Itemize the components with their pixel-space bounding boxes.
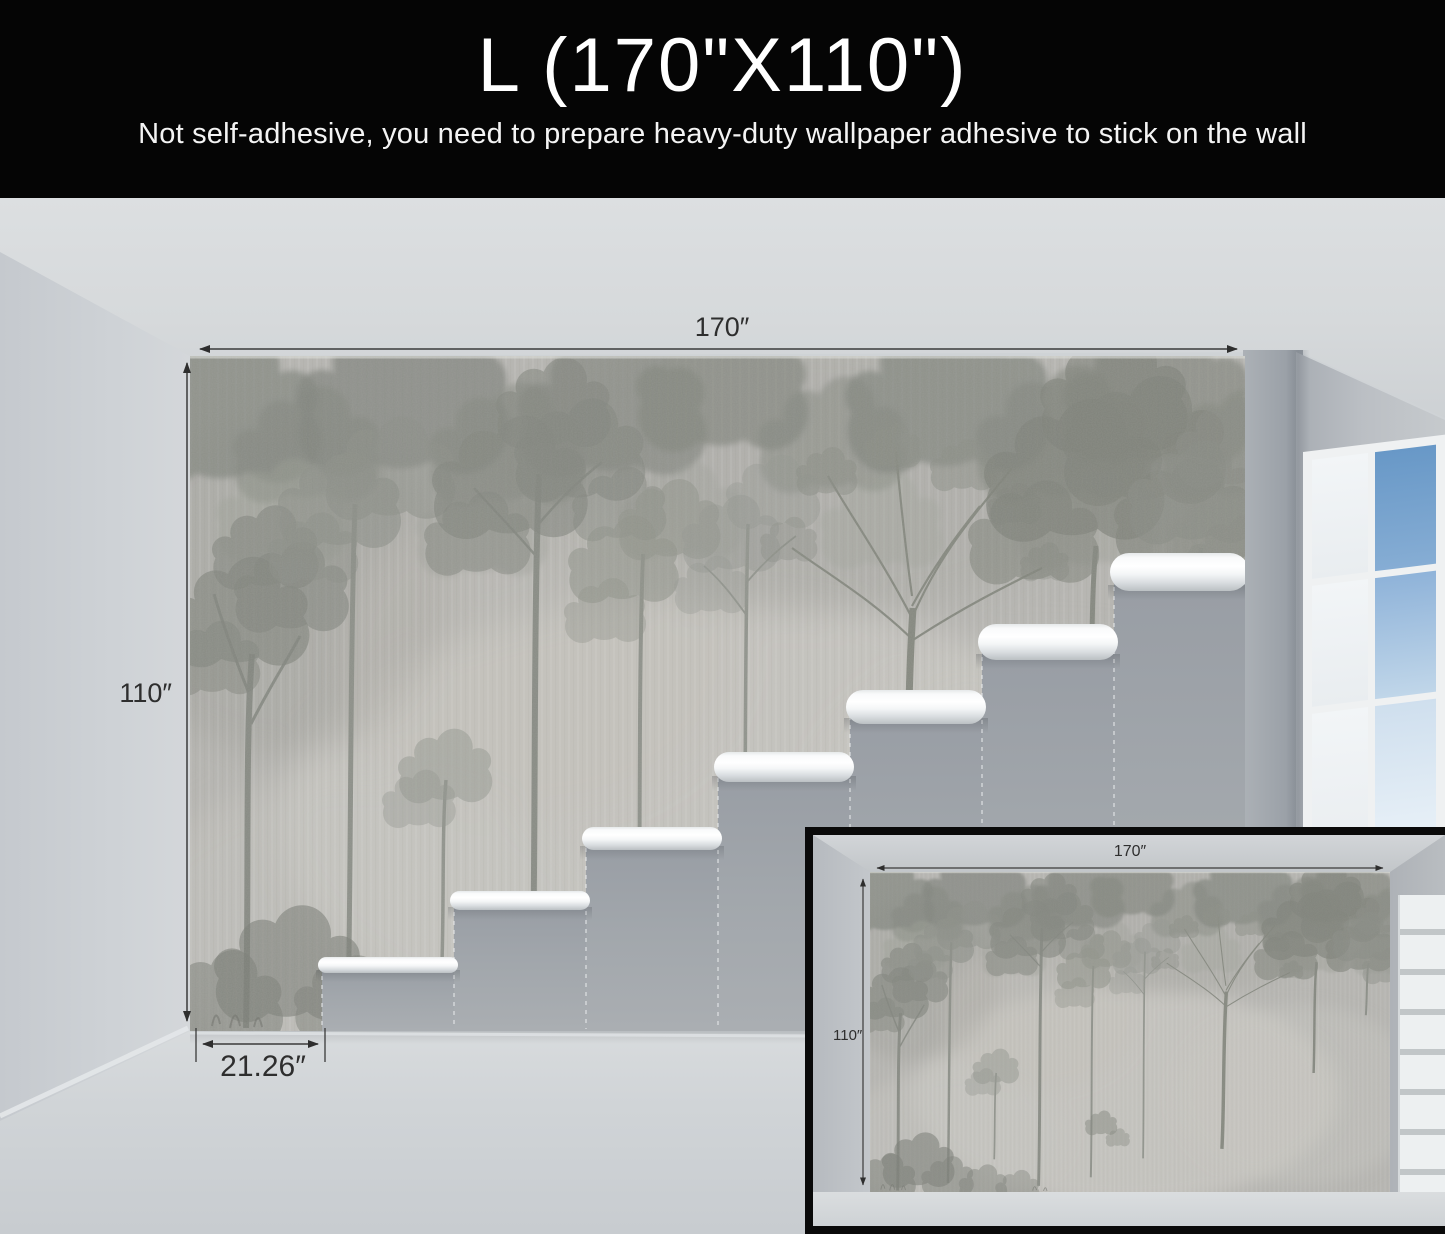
inset-height-dimension-label: 110″ <box>833 1027 862 1044</box>
wallpaper-roll <box>582 827 722 850</box>
inset-preview: 170″ 110″ <box>805 827 1445 1234</box>
inset-room: 170″ 110″ <box>813 835 1445 1226</box>
wallpaper-roll <box>450 891 590 910</box>
wallpaper-roll <box>318 957 458 973</box>
wallpaper-roll <box>978 624 1118 660</box>
window-pane <box>1312 453 1368 579</box>
window-pane-sky <box>1375 445 1436 571</box>
inset-width-dimension-label: 170″ <box>1114 843 1146 861</box>
product-size-image: L (170"X110") Not self-adhesive, you nee… <box>0 0 1445 1234</box>
unpapered-panel <box>586 838 718 1031</box>
width-dimension-label: 170″ <box>695 312 750 343</box>
wall-base-shadow <box>190 1031 808 1044</box>
window-pane <box>1312 579 1368 707</box>
inset-mural <box>870 872 1390 1192</box>
wallpaper-roll <box>846 690 986 724</box>
panel-width-dimension-label: 21.26″ <box>220 1050 306 1084</box>
adhesive-note: Not self-adhesive, you need to prepare h… <box>0 118 1445 151</box>
size-title: L (170"X110") <box>0 0 1445 106</box>
window-pane-sky <box>1375 570 1436 698</box>
inset-floor <box>813 1192 1445 1226</box>
wallpaper-roll <box>714 752 854 782</box>
window-panes <box>1312 445 1436 862</box>
window <box>1303 435 1445 872</box>
wallpaper-roll <box>1110 553 1245 591</box>
inset-door <box>1398 895 1445 1192</box>
height-dimension-label: 110″ <box>119 678 180 709</box>
banner: L (170"X110") Not self-adhesive, you nee… <box>0 0 1445 198</box>
